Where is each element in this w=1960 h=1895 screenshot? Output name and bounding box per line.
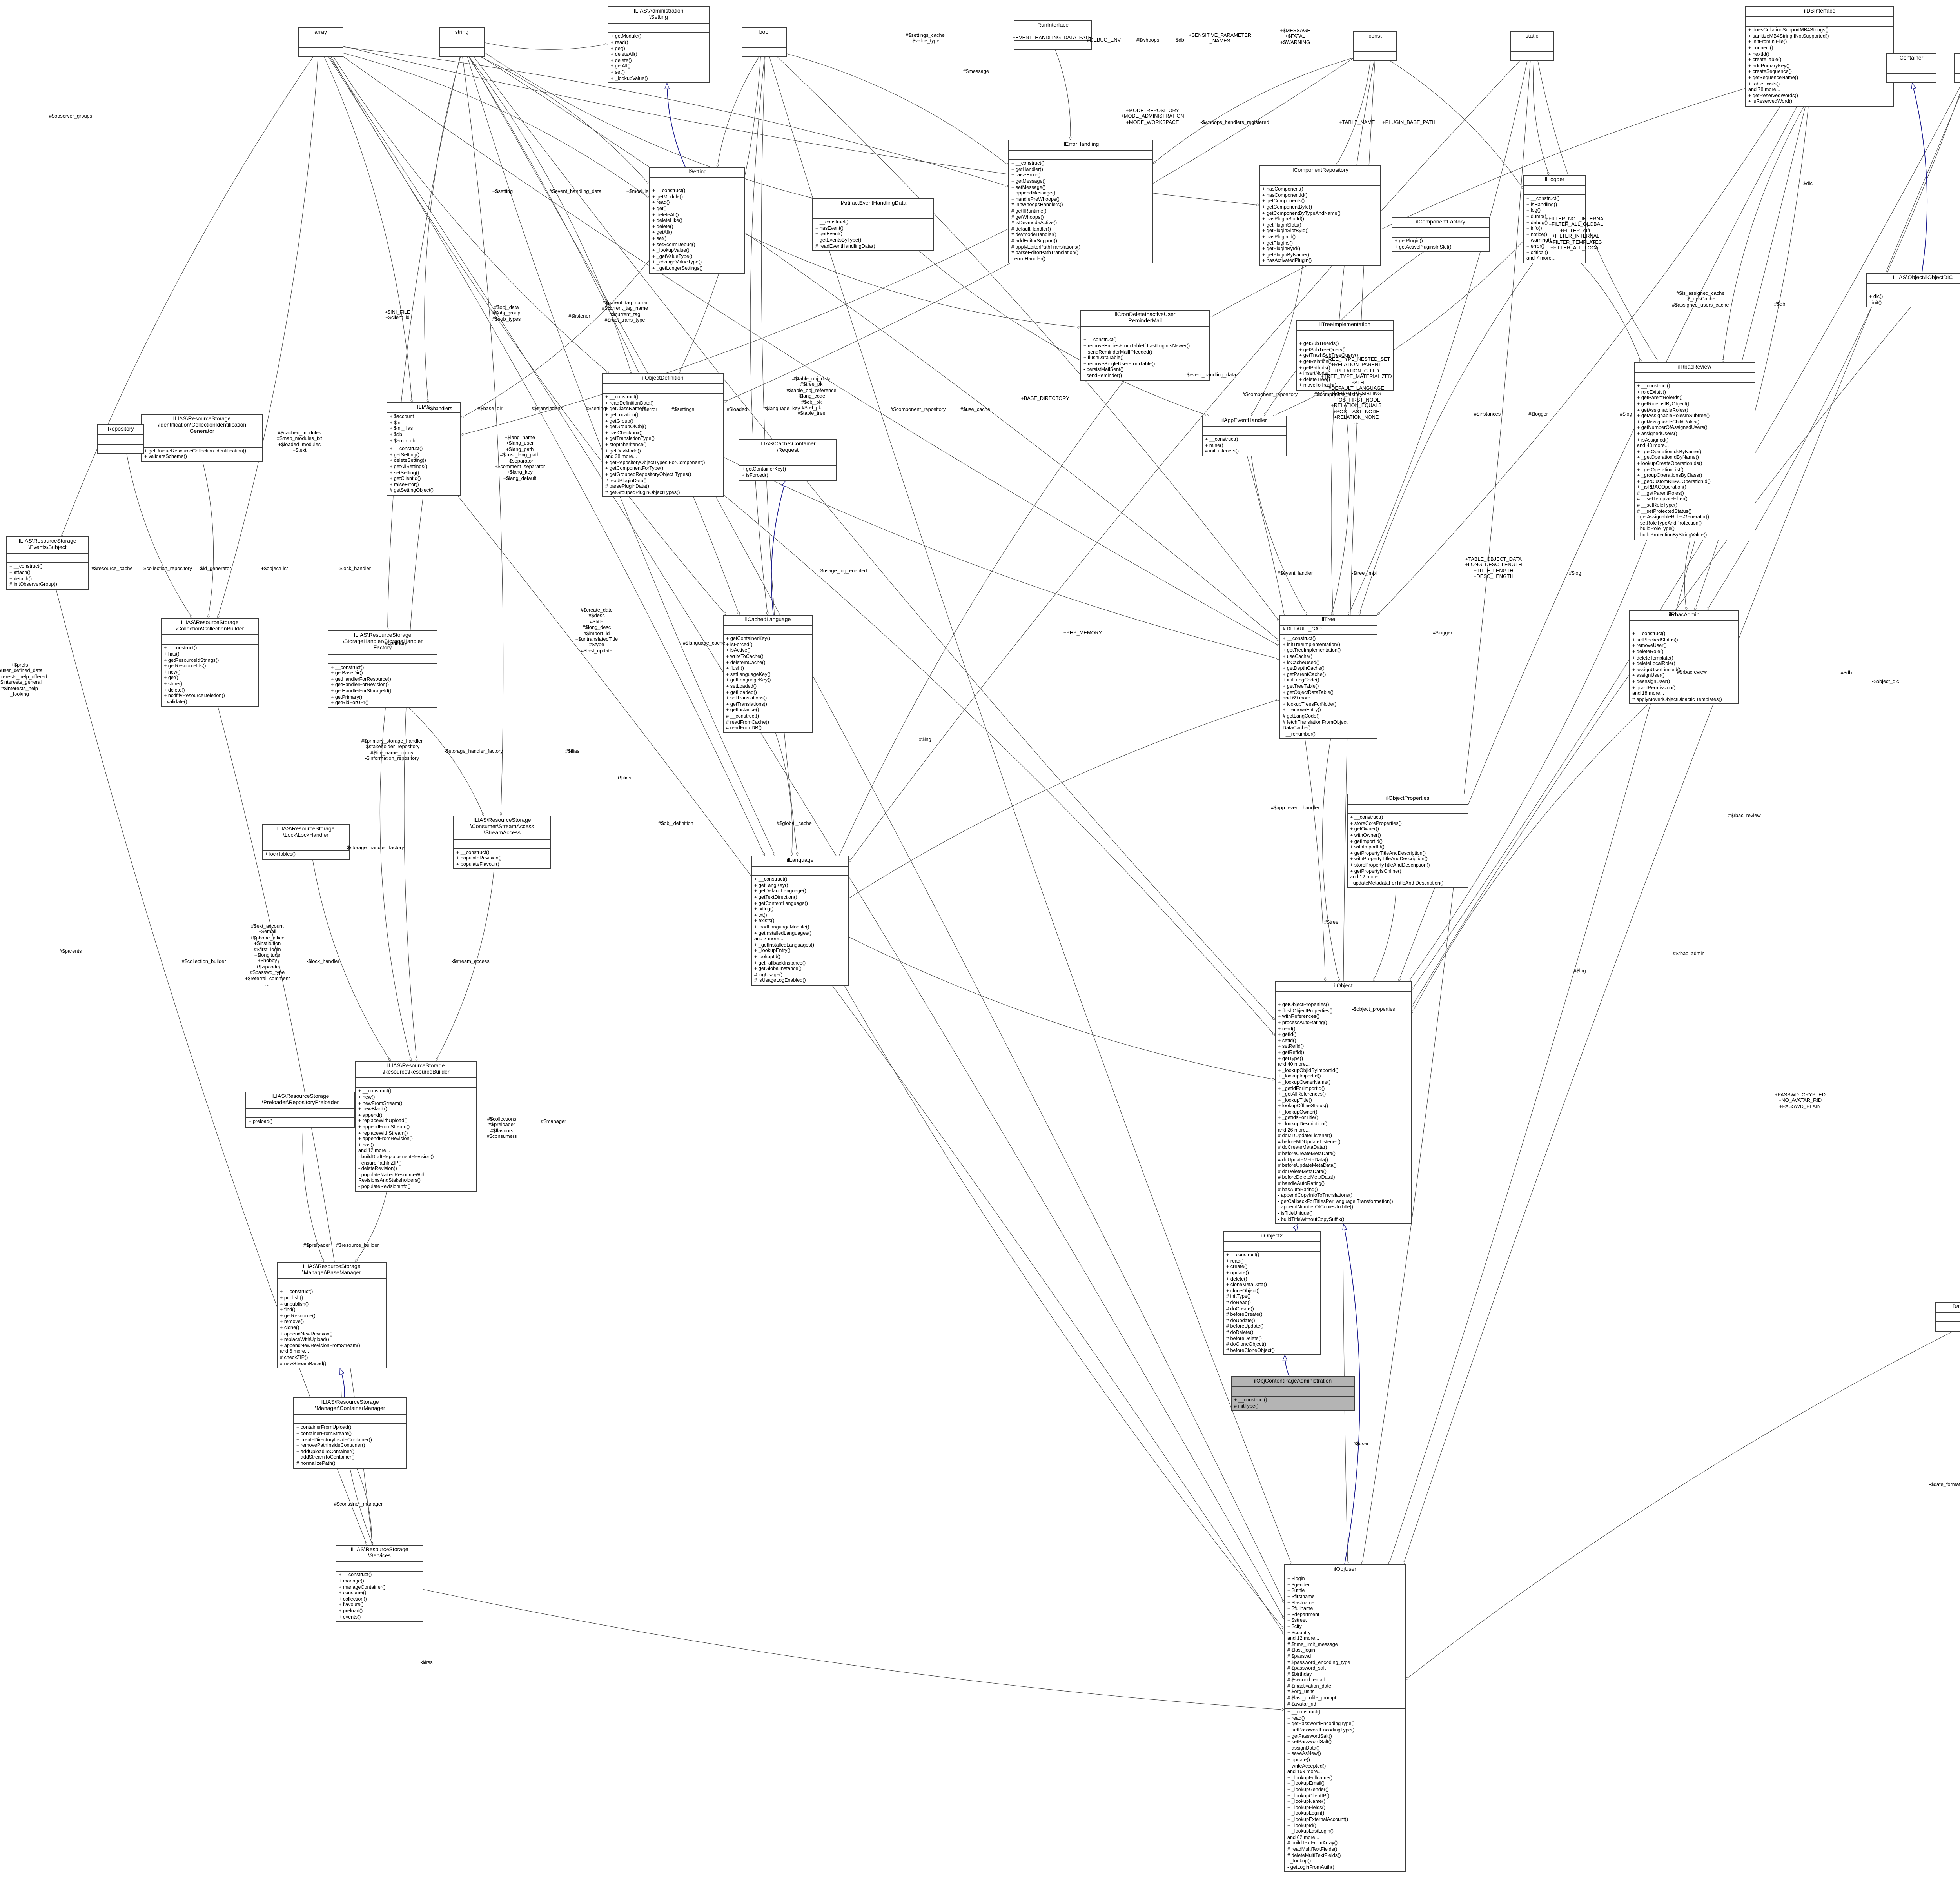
edge-lng-obj [849,937,1275,1080]
methods-item: + getTreeTable() [1283,684,1374,690]
methods-item: + getAll() [652,230,742,236]
class-art[interactable]: ilArtifactEventHandlingData+ __construct… [812,198,934,251]
methods-item: + _getIdsForTitle() [1278,1116,1409,1121]
methods-item: + _removeEntry() [1283,708,1374,714]
class-lck[interactable]: ILIAS\ResourceStorage \Lock\LockHandler+… [262,824,350,861]
methods-item: + __construct() [1205,437,1283,443]
class-creq[interactable]: ILIAS\Cache\Container \Request+ getConta… [739,439,837,480]
class-usr[interactable]: ilObjUser+ $login+ $gender+ $utitle+ $fi… [1284,1564,1406,1872]
methods-item: + __construct() [815,220,931,225]
methods-item: + hasActivatedPlugin() [1262,258,1377,264]
class-svc[interactable]: ILIAS\ResourceStorage \Services+ __const… [336,1545,423,1622]
methods-item: + readDefinitionData() [605,401,720,407]
class-shf[interactable]: ILIAS\ResourceStorage \StorageHandler\St… [328,630,437,708]
methods-item: + __construct() [605,394,720,400]
class-tre[interactable]: ilTree# DEFAULT_GAP+ __construct()+ init… [1279,615,1377,739]
attributes [1630,621,1738,630]
methods-item: and 62 more... [1287,1835,1403,1840]
class-title: ilObjUser [1285,1565,1405,1575]
methods-item: + createTable() [1748,57,1891,63]
methods-item: # readMultiTextFields() [1287,1847,1403,1853]
methods-item: + exists() [754,919,846,925]
class-title: ILIAS\ResourceStorage \Preloader\Reposit… [246,1092,354,1109]
edge-tre-obj [1323,739,1339,981]
edge-boo-usr [769,57,1292,1564]
methods-item: + appendNewRevisionFromStream() [280,1343,383,1349]
methods-item: # addEditorSupport() [1011,238,1150,244]
methods: + __construct()+ roleExists()+ getParent… [1635,383,1755,539]
methods-item: + __construct() [1637,383,1752,389]
methods: + getModule()+ read()+ get()+ deleteAll(… [608,33,709,83]
methods-item: + appendFromRevision() [358,1136,474,1142]
attributes-item: + $firstname [1287,1594,1403,1600]
attributes [739,457,836,466]
methods-item: + getTranslations() [726,701,810,707]
methods: + __construct()+ attach()+ detach()# ini… [7,563,88,589]
methods-item: + get() [611,46,706,52]
attributes-item: # $last_profile_prompt [1287,1695,1403,1701]
methods-item: + withImportId() [1350,845,1465,850]
methods-item: + collection() [339,1597,420,1602]
methods-item: + getRepositoryObjectTypes ForComponent(… [605,460,720,466]
methods-item: + sendReminderMailIfNeeded() [1083,349,1207,355]
methods-item: + manage() [339,1579,420,1584]
methods-item: + flushObjectProperties() [1278,1008,1409,1014]
attributes: # DEFAULT_GAP [1280,626,1377,635]
class-title: ilComponentRepository [1260,166,1380,176]
methods: + __construct()+ getLangKey()+ getDefaul… [752,876,848,985]
attributes-item: + $country [1287,1630,1403,1636]
methods-item: + _lookupFields() [1287,1805,1403,1811]
attributes [1867,284,1960,293]
methods-item: # doRead() [1226,1300,1318,1306]
methods-item: + critical() [1526,250,1583,256]
methods-item: + appendNewRevision() [280,1331,383,1337]
methods-item: + attach() [9,570,85,576]
methods: + __construct()+ initTreeImplementation(… [1280,635,1377,738]
methods: + __construct()+ setBlockedStatus()+ rem… [1630,630,1738,703]
methods-item: + getAll() [611,64,706,70]
methods-item: + clone() [280,1325,383,1331]
class-obj[interactable]: ilObject+ getObjectProperties()+ flushOb… [1275,981,1412,1224]
methods-item: - buildTitleWithoutCopySuffix() [1278,1217,1409,1223]
methods-item: + _getValueType() [652,254,742,260]
class-rpp[interactable]: ILIAS\ResourceStorage \Preloader\Reposit… [245,1092,355,1128]
methods-item: + __construct() [1234,1397,1352,1403]
methods-item: + preload() [339,1608,420,1614]
class-ob2[interactable]: ilObject2+ __construct()+ read()+ create… [1223,1231,1321,1355]
methods-item: + assignUserLimited() [1632,667,1736,673]
class-adm[interactable]: ILIAS\Administration \Setting+ getModule… [608,6,710,83]
methods-item: + _lookupExternalAccount() [1287,1817,1403,1823]
methods-item: + assignedUsers() [1637,431,1752,437]
edge-dic-ctr [1912,83,1927,273]
edge-sta-lng [849,61,1519,862]
class-title: ilObject [1276,982,1411,992]
methods-item: # getIlRuntime() [1011,209,1150,214]
edge-str-adm [485,43,608,50]
methods-item: + getPasswordEncodingType() [1287,1722,1403,1728]
methods-item: + getPluginById() [1262,246,1377,252]
methods-item: and 169 more... [1287,1769,1403,1775]
class-log[interactable]: ilLogger+ __construct()+ isHandling()+ l… [1523,175,1586,263]
methods [1511,52,1553,60]
methods-item: + set() [611,70,706,76]
methods-item: + __construct() [1350,815,1465,821]
methods-item: + withOwner() [1350,833,1465,839]
methods: + __construct()+ manage()+ manageContain… [336,1572,423,1621]
edge-rsb-bmg [356,1192,387,1262]
methods-item: + __construct() [1226,1252,1318,1258]
class-rba[interactable]: ilRbacAdmin+ __construct()+ setBlockedSt… [1629,610,1739,705]
methods-item: + read() [611,40,706,46]
methods: + lockTables() [263,851,349,860]
methods-item: # beforeCreate() [1226,1312,1318,1318]
class-arr[interactable]: array [298,27,343,57]
attributes [454,839,550,849]
methods-item: + getUniqueResourceCollection Identifica… [144,448,260,454]
class-lng[interactable]: ilLanguage+ __construct()+ getLangKey()+… [751,856,849,986]
class-aeh[interactable]: ilAppEventHandler+ __construct()+ raise(… [1202,416,1287,456]
methods-item: + hasCheckbox() [605,431,720,436]
attributes-item: + $street [1287,1618,1403,1624]
attributes-item: # $passwd [1287,1654,1403,1660]
attributes-item: # $password_encoding_type [1287,1660,1403,1666]
class-int[interactable]: int [1954,53,1960,83]
class-rbr[interactable]: ilRbacReview+ __construct()+ roleExists(… [1634,362,1755,540]
methods-item: + _changeValueType() [652,260,742,266]
class-title: ILIAS\ResourceStorage \Lock\LockHandler [263,825,349,842]
methods-item: + __construct() [1526,196,1583,202]
methods-item: + getFallbackInstance() [754,960,846,966]
class-err[interactable]: ilErrorHandling+ __construct()+ getHandl… [1008,140,1153,264]
methods-item: # getGroupedPluginObjectTypes() [605,490,720,496]
methods-item: + publish() [280,1295,383,1301]
attributes-item: + $login [1287,1576,1403,1582]
class-title: int [1955,54,1960,64]
class-str[interactable]: string [439,27,485,57]
methods-item: # parseEditorPathTranslation() [1011,250,1150,256]
methods-item: # doDeleteMetaData() [1278,1169,1409,1175]
class-title: ILIAS\ResourceStorage \Resource\Resource… [356,1062,476,1079]
methods-item: + getContentLanguage() [754,901,846,907]
class-clb[interactable]: ILIAS\ResourceStorage \Collection\Collec… [161,618,259,707]
attributes [742,38,786,48]
methods-item: + __construct() [456,850,548,856]
edge-rbr-obj [1409,540,1646,981]
methods-item: + txt() [754,913,846,919]
methods-item: + _lookupEmail() [1287,1781,1403,1787]
methods-item: and 12 more... [1350,874,1465,880]
methods-item: + getLangKey() [754,883,846,889]
class-ctr[interactable]: Container [1886,53,1936,83]
methods-item: + get() [652,206,742,212]
methods-item: + find() [280,1307,383,1313]
edge-cre-aeh [1251,266,1303,416]
methods-item: and 12 more... [358,1148,474,1154]
methods-item: # readFromCache() [726,719,810,725]
class-boo[interactable]: bool [742,27,787,57]
methods-item: - populateNakedResourceWith RevisionsAnd… [358,1172,474,1184]
methods-item: # newStreamBased() [280,1361,383,1367]
attributes-item: # $password_salt [1287,1666,1403,1672]
class-evs[interactable]: ILIAS\ResourceStorage \Events\Subject+ _… [6,536,89,590]
methods-item: # beforeCloneObject() [1226,1348,1318,1354]
methods-item: - getCallbackForTitlesPerLanguage Transf… [1278,1199,1409,1205]
methods-item: # beforeUpdate() [1226,1324,1318,1330]
methods-item: + stopInheritance() [605,442,720,448]
methods-item: + writeToCache() [726,654,810,660]
methods-item: + setPasswordEncodingType() [1287,1728,1403,1733]
methods-item: # doUpdateMetaData() [1278,1157,1409,1163]
methods-item: + manageContainer() [339,1584,420,1590]
class-title: ILIAS\ResourceStorage \Services [336,1546,423,1563]
methods-item: + initFromIniFile() [1748,40,1891,45]
methods-item: + _lookupDescription() [1278,1121,1409,1127]
methods-item: + _lookupImportId() [1278,1074,1409,1080]
class-title: ilRbacReview [1635,363,1755,373]
methods-item: + update() [1287,1757,1403,1763]
methods-item: + getRelation() [1299,359,1391,365]
methods-item: # __setRoleType() [1637,503,1752,509]
attributes [294,1415,406,1424]
methods-item: + getResourceIds() [164,663,256,669]
methods-item: - deleteRevision() [358,1166,474,1172]
uml-collaboration-diagram: arraystringILIAS\Administration \Setting… [0,0,1960,1895]
class-dff[interactable]: DataFormatFactory [1935,1302,1960,1332]
attributes-item: + $utitle [1287,1588,1403,1594]
methods-item: + hasEvent() [815,226,931,232]
attributes [440,38,484,48]
edge-rep-clb [127,454,192,618]
methods-item: + hasComponent() [1262,187,1377,193]
methods [742,48,786,56]
methods-item: + getParentRoleIds() [1637,396,1752,402]
methods-item: + delete() [611,58,706,64]
methods-item: # beforeDeleteMetaData() [1278,1175,1409,1181]
class-dic[interactable]: ILIAS\Object\ilObjectDIC+ dic()- init() [1866,273,1960,308]
methods-item: + _lookupFullname() [1287,1775,1403,1781]
methods-item: + getInstance() [726,708,810,714]
class-title: ilTreeImplementation [1297,321,1393,331]
methods-item: - validate() [164,699,256,705]
class-title: ILIAS\ResourceStorage \Collection\Collec… [162,619,258,636]
methods-item: # __setTemplateFilter() [1637,497,1752,503]
methods-item: and 6 more... [280,1349,383,1355]
class-sta[interactable]: static [1510,31,1554,61]
methods-item: + getPropertyIsOnline() [1350,868,1465,874]
methods-item: + new() [358,1095,474,1101]
methods-item: + _getInstalledLanguages() [754,942,846,948]
attributes [98,435,143,445]
methods-item: + _lookupId() [1287,1823,1403,1829]
methods-item: + removeUser() [1632,643,1736,649]
methods-item: + __construct() [9,564,85,570]
methods: + __construct()+ getModule()+ read()+ ge… [650,187,744,273]
methods-item: + sanitizeMB4StringIfNotSupported() [1748,34,1891,40]
methods-item: + lockTables() [265,852,347,858]
methods-item: + setLoaded() [726,684,810,690]
edge-svc-usr [423,1590,1284,1710]
class-con[interactable]: const [1353,31,1397,61]
methods-item: + warning() [1526,238,1583,244]
methods-item: + getType() [1278,1056,1409,1062]
methods-item: + lookupOfflineStatus() [1278,1104,1409,1110]
methods-item: + update() [1226,1270,1318,1276]
attributes-item: + $error_obj [390,438,458,444]
class-title: ilCronDeleteInactiveUser ReminderMail [1081,311,1209,327]
class-title: ilObjectProperties [1348,794,1468,805]
methods-item: + deassignUser() [1632,679,1736,685]
class-odf[interactable]: ilObjectDefinition+ __construct()+ readD… [602,373,724,498]
attributes [1009,151,1152,160]
attributes-item: + $account [390,414,458,420]
methods-item: + writeAccepted() [1287,1763,1403,1769]
class-dbi[interactable]: ilDBInterface+ doesCollationSupportMB4St… [1745,6,1894,107]
methods-item: + populateFlavour() [456,862,548,868]
attributes-item: and 12 more... [1287,1636,1403,1642]
methods-item: + withPropertyTitleAndDescription() [1350,857,1465,863]
methods-item: # applyMovedObjectDidactic Templates() [1632,697,1736,703]
methods-item: + getComponents() [1262,199,1377,205]
class-set[interactable]: ilSetting+ __construct()+ getModule()+ r… [649,167,745,273]
attributes [299,38,343,48]
methods: + __construct()+ isHandling()+ log()+ du… [1524,195,1585,262]
methods-item: + handlePreWhoops() [1011,197,1150,203]
methods-item: + getContainerKey() [726,636,810,642]
methods-item: + getReservedWords() [1748,93,1891,99]
edge-set-adm [667,83,685,167]
attributes [142,438,262,447]
class-cig[interactable]: ILIAS\ResourceStorage \Identification\Co… [141,414,263,462]
edge-cpa-ob2 [1285,1355,1289,1376]
methods-item: + getLanguageKey() [726,678,810,684]
methods-item: + getObjectProperties() [1278,1002,1409,1008]
class-title: ILIAS\Cache\Container \Request [739,440,836,457]
methods-item: # initWhoopsHandlers() [1011,203,1150,209]
methods-item: + _getCustomRBACOperationId() [1637,479,1752,485]
methods: + __construct()+ hasEvent()+ getEvent()+… [813,219,933,250]
class-sac[interactable]: ILIAS\ResourceStorage \Consumer\StreamAc… [453,816,551,869]
methods-item: + delete() [652,224,742,230]
methods-item: + isActive() [726,648,810,654]
methods-item: + raiseError() [390,482,458,488]
methods-item: + has() [358,1143,474,1148]
attributes-item: + $city [1287,1624,1403,1630]
methods-item: + _lookupLastLogin() [1287,1829,1403,1835]
class-run[interactable]: RunInterface [1014,20,1092,50]
methods-item: + getLoaded() [726,690,810,696]
methods-item: + useCache() [1283,654,1374,660]
edge-rpp-bmg [303,1128,323,1262]
edge-str-odf [469,57,631,373]
methods-item: + consume() [339,1590,420,1596]
class-rep[interactable]: Repository [97,424,144,454]
class-bmg[interactable]: ILIAS\ResourceStorage \Manager\BaseManag… [277,1262,387,1368]
class-rsb[interactable]: ILIAS\ResourceStorage \Resource\Resource… [355,1061,477,1192]
methods-item: # initType() [1226,1294,1318,1300]
methods [1887,74,1936,82]
methods-item: + deleteTemplate() [1632,655,1736,661]
class-cre[interactable]: ilComponentRepository+ hasComponent()+ h… [1259,165,1381,266]
methods-item: + getHandlerForResource() [331,677,434,683]
methods-item: + _isRBACOperation() [1637,485,1752,491]
class-ili[interactable]: ILIAS+ $account+ $ini+ $ini_ilias+ $db+ … [387,402,461,496]
methods-item: + getComponentById() [1262,205,1377,211]
methods-item: + getModule() [611,34,706,40]
methods-item: + _getIdForImportId() [1278,1086,1409,1092]
methods-item: + set() [652,236,742,242]
methods-item: + initLangCode() [1283,678,1374,684]
class-cpa[interactable]: ilObjContentPageAdministration+ __constr… [1231,1376,1355,1411]
class-crn[interactable]: ilCronDeleteInactiveUser ReminderMail+ _… [1080,310,1210,381]
class-cmg[interactable]: ILIAS\ResourceStorage \Manager\Container… [293,1397,407,1468]
methods-item: + detach() [9,576,85,582]
methods: + __construct()+ new()+ newFromStream()+… [356,1088,476,1191]
methods: + __construct()+ removeEntriesFromTableI… [1081,337,1209,380]
methods-item: + getPrimary() [331,694,434,700]
methods-item: # hasAutoRating() [1278,1187,1409,1193]
methods-item: + setLanguageKey() [726,672,810,678]
methods-item: + getTranslationType() [605,436,720,442]
methods-item: + getAssignableRoles() [1637,407,1752,413]
attributes [1081,327,1209,337]
methods-item: + getPathIds() [1299,365,1391,371]
edge-ili-usr [457,496,1284,1634]
methods-item: + getModule() [652,194,742,200]
methods-item: + getClassName() [605,407,720,412]
methods-item: + _lookupEntry() [754,948,846,954]
methods-item: + getOwner() [1350,827,1465,833]
attributes [246,1109,354,1119]
class-tim[interactable]: ilTreeImplementation+ getSubTreeIds()+ g… [1296,320,1394,391]
edge-arr-clb [218,57,318,618]
methods-item: + getPlugin() [1395,238,1486,244]
methods-item: + flush() [726,666,810,672]
class-title: ilSetting [650,168,744,178]
methods [98,445,143,453]
attributes [650,178,744,187]
methods-item: # isDevmodeActive() [1011,220,1150,226]
methods: + __construct()+ populateRevision()+ pop… [454,849,550,868]
class-title: ILIAS\ResourceStorage \StorageHandler\St… [328,631,437,654]
methods-item: + grantPermission() [1632,685,1736,691]
methods-item: + withReferences() [1278,1014,1409,1020]
methods-item: + hasPluginId() [1262,234,1377,240]
methods-item: and 69 more... [1283,696,1374,701]
methods-item: + removePathInsideContainer() [296,1443,404,1449]
methods [440,48,484,56]
attributes-item: # $second_email [1287,1678,1403,1684]
class-title: array [299,28,343,38]
methods-item: + initTreeImplementation() [1283,642,1374,648]
methods-item: - init() [1869,300,1960,306]
edge-rbr-rba [1684,540,1690,610]
class-clg[interactable]: ilCachedLanguage+ getContainerKey()+ isF… [723,615,813,733]
methods-item: + append() [358,1113,474,1119]
methods-item: + getGlobalInstance() [754,966,846,972]
methods-item: - populateRevisionInfo() [358,1184,474,1190]
class-cfa[interactable]: ilComponentFactory+ getPlugin()+ getActi… [1392,217,1490,252]
class-opr[interactable]: ilObjectProperties+ __construct()+ store… [1347,794,1468,888]
methods-item: + getPluginByName() [1262,252,1377,258]
methods-item: + validateScheme() [144,454,260,460]
methods-item: # beforeCreateMetaData() [1278,1151,1409,1157]
attributes [328,654,437,664]
attributes-item: + $fullname [1287,1606,1403,1612]
class-title: bool [742,28,786,38]
methods-item: + flushDataTable() [1083,355,1207,361]
